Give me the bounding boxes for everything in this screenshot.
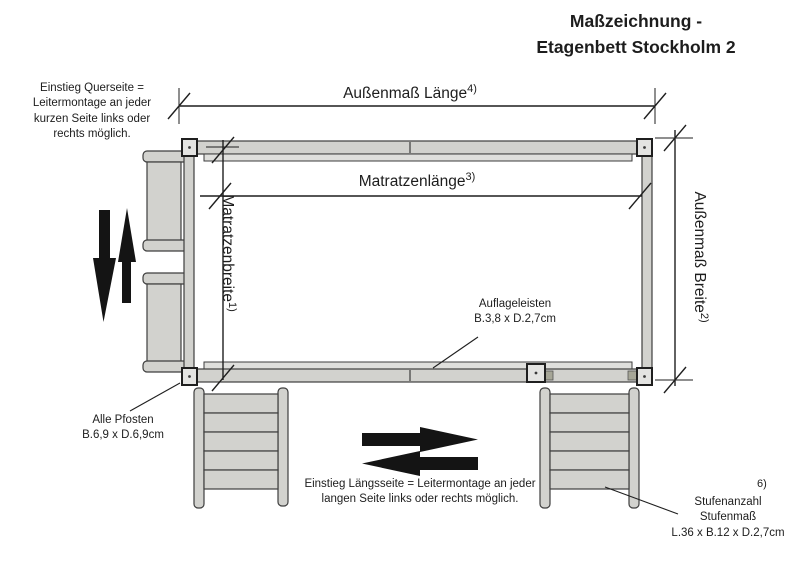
ladder-step — [204, 394, 278, 413]
dim-footnote: 1) — [226, 302, 238, 312]
dim-footnote: 3) — [466, 171, 476, 183]
dim-footnote: 4) — [467, 83, 477, 95]
post-center-dot — [643, 146, 646, 149]
rail-connector — [545, 371, 553, 380]
support-rail-top — [204, 154, 632, 161]
long-rail-top — [197, 141, 637, 154]
note-entry-long-side: Einstieg Längsseite = Leitermontage an j… — [280, 477, 560, 508]
ladder-step — [550, 394, 629, 413]
drawing-title: Maßzeichnung - Etagenbett Stockholm 2 — [500, 8, 772, 61]
ladder-step — [550, 432, 629, 451]
ladder-step — [204, 470, 278, 489]
dim-footnote: 2) — [698, 313, 710, 323]
note-support-rails: Auflageleisten B.3,8 x D.2,7cm — [440, 297, 590, 328]
footnote-steps: 6) — [757, 478, 767, 490]
ladder-stringer — [143, 273, 188, 284]
dim-label-outer-width: Außenmaß Breite2) — [690, 172, 710, 342]
ladder-short-side-lower — [143, 273, 188, 372]
ladder-stringer — [194, 388, 204, 508]
post-center-dot — [535, 372, 538, 375]
ladder-step — [204, 413, 278, 432]
arrow-right-icon — [362, 427, 478, 452]
dim-text: Matratzenlänge — [359, 173, 466, 190]
ladder-step — [550, 470, 629, 489]
ladder-step-top-view — [147, 162, 181, 241]
title-line-1: Maßzeichnung - — [500, 8, 772, 34]
support-rail-bottom — [204, 362, 632, 369]
ladder-short-side-upper — [143, 151, 188, 251]
dim-label-outer-length: Außenmaß Länge4) — [285, 83, 535, 103]
ladder-step-top-view — [147, 284, 181, 362]
post-center-dot — [188, 146, 191, 149]
note-steps: Stufenanzahl Stufenmaß L.36 x B.12 x D.2… — [653, 495, 800, 541]
arrow-up-icon — [118, 208, 136, 303]
ladder-long-side-left — [194, 388, 288, 508]
side-rail-left — [184, 153, 194, 371]
ladder-stringer — [143, 240, 188, 251]
dimension-outer-width — [655, 125, 693, 393]
dim-text: Außenmaß Länge — [343, 85, 467, 102]
side-rail-right — [642, 153, 652, 371]
ladder-step — [550, 413, 629, 432]
arrow-down-icon — [93, 210, 116, 322]
long-rail-bottom — [197, 369, 637, 382]
note-posts: Alle Pfosten B.6,9 x D.6,9cm — [48, 413, 198, 444]
dim-text: Matratzenbreite — [219, 194, 236, 302]
rail-connector — [628, 371, 637, 380]
ladder-step — [550, 451, 629, 470]
arrow-left-icon — [362, 451, 478, 476]
post-center-dot — [643, 375, 646, 378]
dim-text: Außenmaß Breite — [691, 191, 708, 312]
note-entry-short-side: Einstieg Querseite = Leitermontage an je… — [17, 81, 167, 143]
leader-posts — [130, 383, 180, 411]
ladder-step — [204, 451, 278, 470]
technical-drawing-canvas: Maßzeichnung - Etagenbett Stockholm 2 Ei… — [0, 0, 800, 566]
dim-label-mattress-length: Matratzenlänge3) — [317, 171, 517, 191]
post-center-dot — [188, 375, 191, 378]
title-line-2: Etagenbett Stockholm 2 — [500, 34, 772, 60]
ladder-step — [204, 432, 278, 451]
dim-label-mattress-width: Matratzenbreite1) — [218, 168, 238, 338]
ladder-stringer — [629, 388, 639, 508]
